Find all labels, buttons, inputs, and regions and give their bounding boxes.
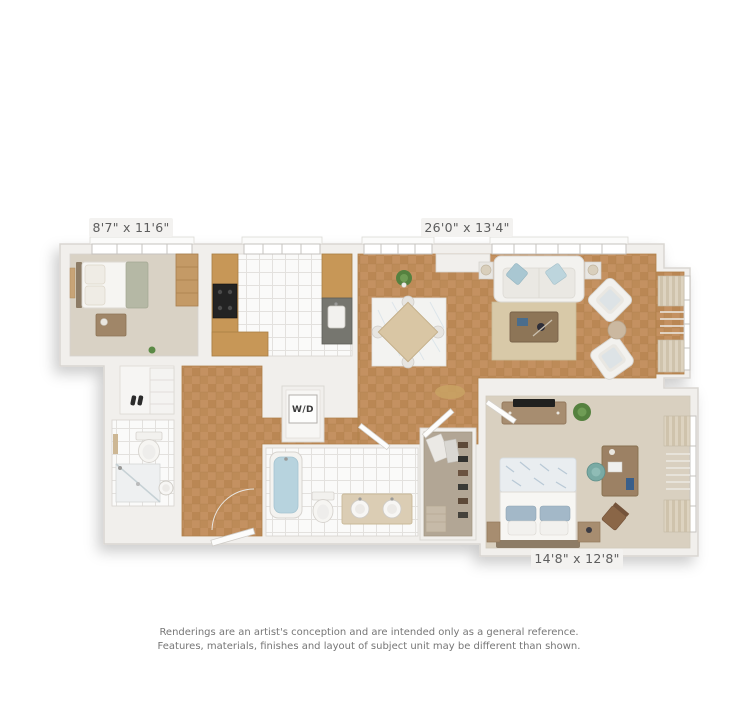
- floorplan-page: W/D: [0, 0, 743, 727]
- tub-faucet: [284, 457, 288, 461]
- nightstand: [96, 314, 126, 336]
- bed-throw: [126, 262, 148, 308]
- curtain-panel: [664, 500, 690, 532]
- round-side-table: [608, 321, 626, 339]
- closet-shelf: [426, 506, 446, 532]
- living-room-window: [490, 237, 628, 254]
- pillow: [85, 265, 105, 284]
- tv: [513, 399, 555, 407]
- curtain-panel: [664, 416, 690, 446]
- stove: [213, 284, 237, 318]
- disclaimer-line-1: Renderings are an artist's conception an…: [159, 627, 578, 638]
- disclaimer-line-2: Features, materials, finishes and layout…: [158, 641, 581, 652]
- coffee-table: [510, 312, 558, 342]
- foyer-mat: [435, 385, 465, 399]
- small-bedroom-dimensions: 8'7" x 11'6": [92, 220, 169, 235]
- table-lamp: [588, 265, 598, 275]
- kitchen-window: [242, 237, 322, 254]
- curtain-panel: [658, 276, 684, 306]
- kitchen-island: [212, 332, 268, 356]
- floorplan-rendering: W/D: [0, 0, 743, 727]
- shower-drain: [136, 482, 140, 486]
- living-room-dimensions: 26'0" x 13'4": [424, 220, 509, 235]
- kitchen-cabinets-right: [322, 254, 352, 298]
- curtain-panel: [658, 340, 684, 372]
- disclaimer: Renderings are an artist's conception an…: [158, 627, 581, 652]
- nightstand: [487, 522, 500, 542]
- washer-dryer-label: W/D: [292, 405, 314, 415]
- desk-papers: [608, 462, 622, 472]
- walk-in-closet: [420, 409, 476, 540]
- wall-art: [70, 268, 75, 298]
- coffee-table-books: [517, 318, 528, 326]
- master-bedroom-dimensions: 14'8" x 12'8": [534, 551, 619, 566]
- faucet: [390, 497, 393, 500]
- dining-window: [362, 237, 434, 254]
- faucet: [358, 497, 361, 500]
- desk-books: [626, 478, 634, 490]
- kitchen-sink: [328, 306, 345, 328]
- plant: [149, 347, 156, 354]
- pillow: [506, 506, 536, 521]
- shower-head: [118, 466, 122, 470]
- bathtub-water: [274, 457, 298, 513]
- toilet-tank: [136, 432, 162, 440]
- pillow: [540, 521, 568, 535]
- lamp: [101, 319, 108, 326]
- desk-lamp: [609, 449, 615, 455]
- washer-dryer-closet: W/D: [282, 386, 324, 442]
- linen-cabinet: [150, 368, 174, 414]
- toilet-tank: [312, 492, 334, 500]
- small-bedroom-window: [90, 237, 194, 254]
- faucet: [334, 302, 337, 305]
- table-lamp: [481, 265, 491, 275]
- pillow: [508, 521, 536, 535]
- pillow: [85, 286, 105, 305]
- pillow: [540, 506, 570, 521]
- bed-headboard: [76, 262, 82, 308]
- bed-headboard: [496, 540, 580, 548]
- towel-bar: [113, 434, 118, 454]
- nightstand-lamp: [586, 527, 592, 533]
